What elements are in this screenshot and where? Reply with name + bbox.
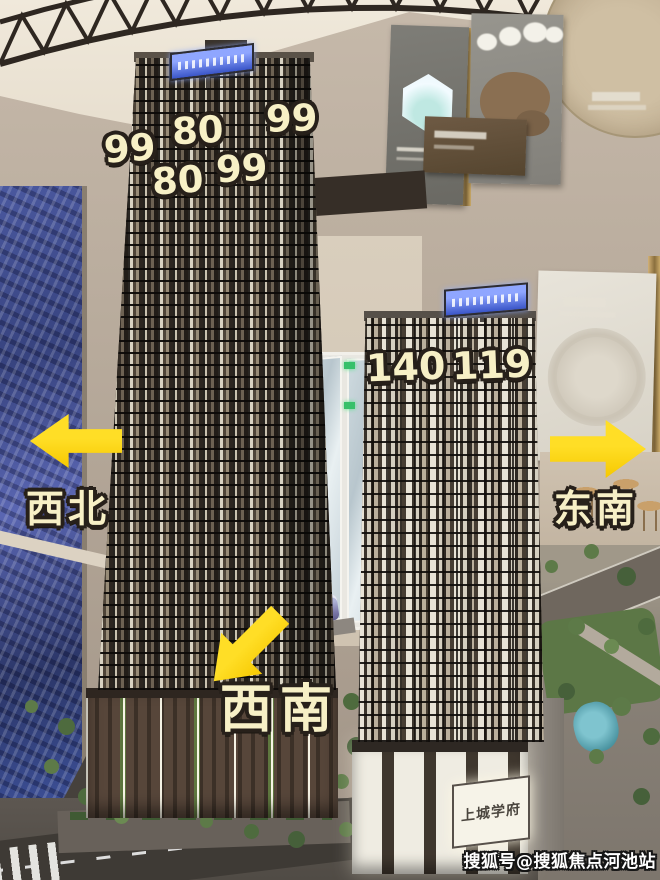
bronze-board-glow-text: [434, 131, 486, 140]
compass-diagram: [546, 327, 647, 428]
sales-center-model-photo: 上城学府 99 80 99 80 99 140 119 西北 东南 西南 搜狐号…: [0, 0, 660, 880]
floor-count-label: 80: [171, 111, 224, 151]
tree-cluster-right: [545, 560, 558, 573]
floor-count-label: 99: [215, 149, 268, 189]
map-bubble: [499, 27, 521, 46]
watermark: 搜狐号@搜狐焦点河池站: [464, 847, 657, 872]
direction-label-northwest: 西北: [26, 490, 110, 528]
display-board-compass: [534, 270, 657, 463]
floor-count-label: 99: [265, 99, 318, 138]
tree-cluster-left: [25, 700, 38, 713]
exit-sign-icon: [344, 402, 355, 409]
floor-count-label: 119: [451, 345, 532, 386]
stool: [636, 500, 660, 532]
map-bubble: [545, 26, 563, 42]
bronze-sign-board: [423, 116, 527, 176]
direction-label-southeast: 东南: [554, 490, 638, 528]
direction-label-southwest: 西南: [220, 684, 340, 736]
bronze-board-glow-subtext: [434, 145, 474, 150]
floor-count-label: 80: [151, 160, 205, 201]
map-bubble: [477, 33, 497, 50]
board-glow-subtitle: [559, 311, 615, 317]
crosswalk: [0, 841, 65, 880]
floor-count-label: 99: [103, 128, 157, 169]
exit-sign-icon: [344, 362, 355, 369]
board-glow-title: [564, 297, 606, 307]
map-bubble: [523, 22, 547, 42]
project-name-sign: 上城学府: [452, 775, 530, 849]
wall-glow-caption: [592, 92, 640, 101]
project-name-text: 上城学府: [461, 798, 521, 825]
floor-count-label: 140: [365, 347, 446, 388]
wall-glow-subcaption: [588, 105, 646, 110]
